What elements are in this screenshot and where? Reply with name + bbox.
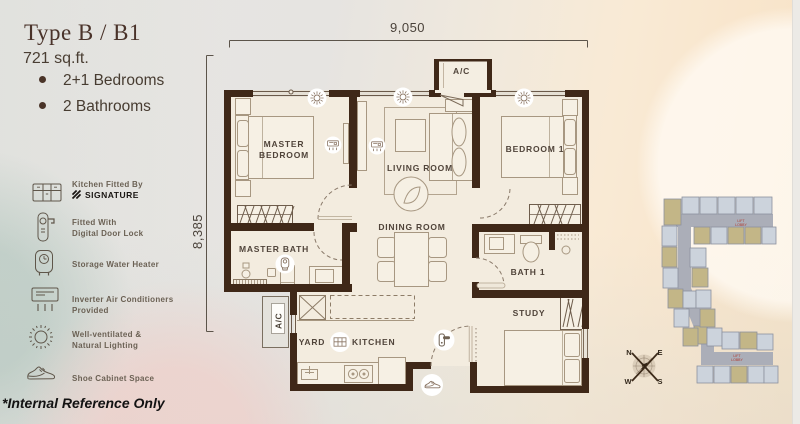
svg-text:BEDROOM 1: BEDROOM 1 bbox=[506, 144, 565, 154]
svg-text:DINING ROOM: DINING ROOM bbox=[378, 222, 445, 232]
svg-text:N: N bbox=[626, 348, 631, 357]
svg-text:W: W bbox=[624, 377, 632, 386]
svg-text:8,385: 8,385 bbox=[190, 214, 205, 249]
svg-text:MASTER: MASTER bbox=[264, 139, 305, 149]
svg-text:LOBBY: LOBBY bbox=[731, 358, 743, 362]
svg-text:A/C: A/C bbox=[274, 313, 284, 329]
svg-text:YARD: YARD bbox=[299, 337, 326, 347]
svg-text:STUDY: STUDY bbox=[513, 308, 546, 318]
svg-text:BATH 1: BATH 1 bbox=[511, 267, 546, 277]
svg-text:LOBBY: LOBBY bbox=[735, 223, 747, 227]
svg-text:BEDROOM: BEDROOM bbox=[259, 150, 309, 160]
svg-text:MASTER BATH: MASTER BATH bbox=[239, 244, 309, 254]
svg-text:A/C: A/C bbox=[453, 66, 470, 76]
svg-text:S: S bbox=[657, 377, 662, 386]
svg-text:E: E bbox=[657, 348, 662, 357]
svg-text:KITCHEN: KITCHEN bbox=[352, 337, 395, 347]
svg-text:LIVING ROOM: LIVING ROOM bbox=[387, 163, 453, 173]
svg-text:9,050: 9,050 bbox=[390, 20, 425, 35]
